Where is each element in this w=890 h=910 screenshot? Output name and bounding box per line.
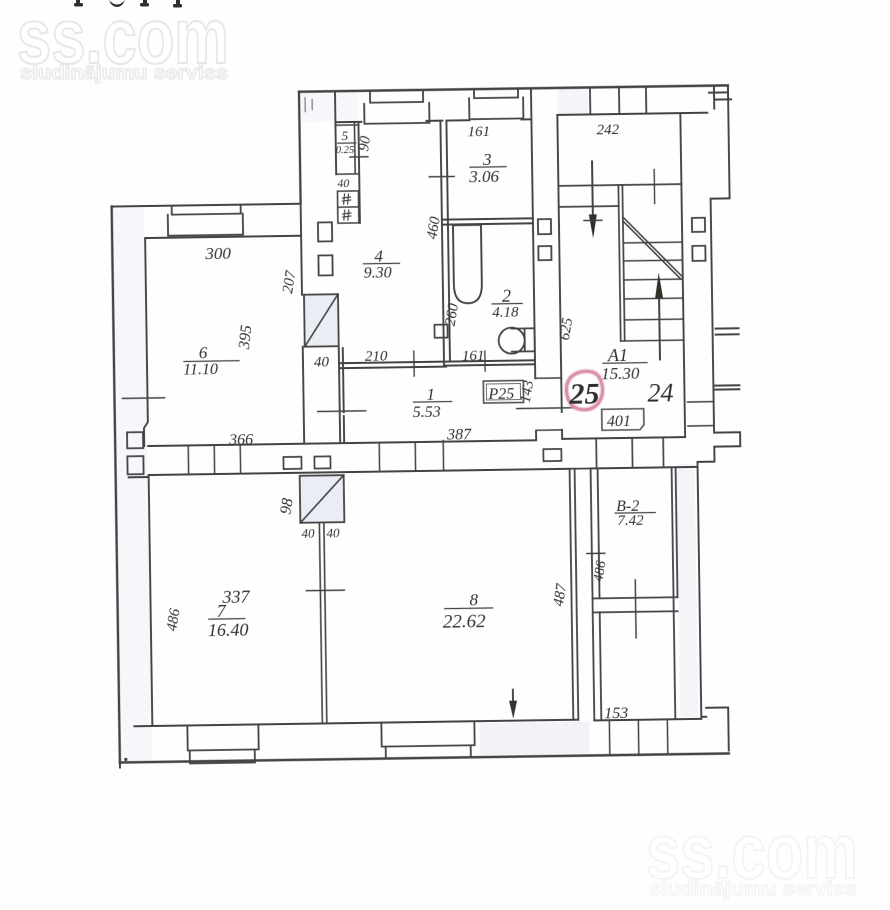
svg-text:P25: P25: [487, 386, 514, 403]
svg-text:387: 387: [446, 426, 472, 443]
svg-text:40: 40: [337, 176, 349, 190]
svg-text:161: 161: [467, 124, 490, 140]
svg-text:395: 395: [236, 324, 256, 351]
svg-text:40: 40: [301, 526, 315, 541]
svg-text:210: 210: [365, 348, 388, 364]
svg-text:24: 24: [647, 378, 673, 407]
svg-text:153: 153: [604, 705, 628, 722]
svg-text:6: 6: [199, 343, 208, 362]
svg-text:sludinājumu serviss: sludinājumu serviss: [649, 879, 857, 900]
svg-text:15.30: 15.30: [601, 364, 640, 384]
svg-text:401: 401: [607, 413, 631, 430]
svg-text:11.10: 11.10: [183, 361, 218, 379]
svg-text:242: 242: [596, 122, 619, 138]
svg-text:5: 5: [342, 128, 349, 143]
svg-text:161: 161: [462, 348, 485, 364]
svg-text:3.06: 3.06: [468, 167, 500, 186]
svg-text:9.30: 9.30: [364, 264, 392, 281]
svg-text:16.40: 16.40: [208, 620, 249, 641]
svg-text:300: 300: [204, 244, 231, 263]
svg-text:25: 25: [568, 377, 599, 410]
svg-text:98: 98: [277, 497, 296, 515]
svg-text:366: 366: [228, 431, 253, 448]
svg-text:7: 7: [217, 601, 227, 621]
svg-text:sludinājumu serviss: sludinājumu serviss: [20, 63, 228, 84]
svg-text:337: 337: [221, 587, 250, 607]
svg-text:40: 40: [326, 525, 340, 540]
svg-text:0.25: 0.25: [336, 145, 355, 156]
svg-text:2: 2: [502, 286, 511, 306]
svg-text:90: 90: [356, 135, 374, 153]
svg-text:5.53: 5.53: [413, 404, 441, 421]
svg-text:22.62: 22.62: [443, 611, 487, 633]
svg-text:A1: A1: [607, 345, 628, 365]
svg-text:4.18: 4.18: [492, 305, 519, 321]
svg-text:7.42: 7.42: [617, 513, 644, 529]
svg-text:1: 1: [426, 385, 435, 404]
svg-text:40: 40: [314, 354, 330, 370]
svg-text:4: 4: [374, 247, 383, 266]
svg-text:8: 8: [469, 590, 478, 609]
